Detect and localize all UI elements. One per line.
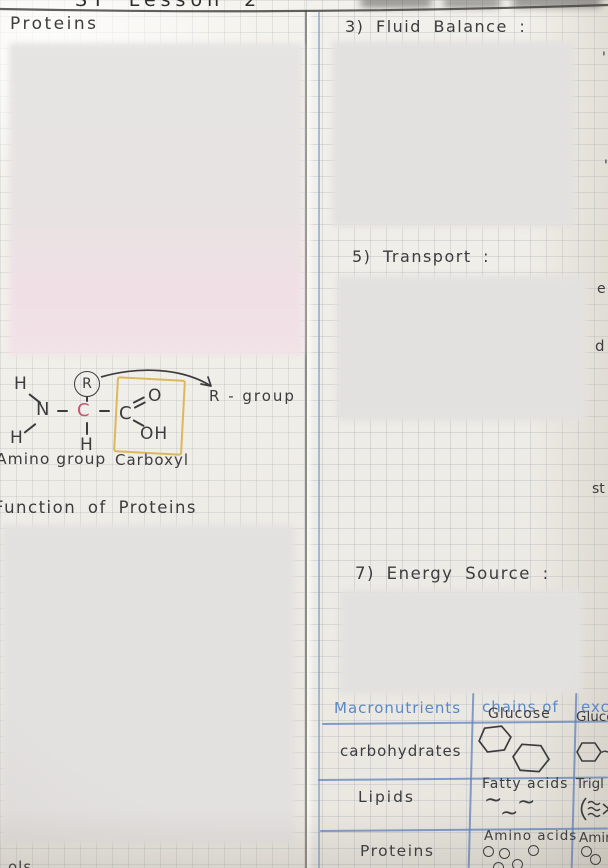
amino-acids-label: Amino acids: [484, 828, 577, 844]
right-edge-mark-1: ': [602, 50, 606, 66]
bottom-left-text-fragment: ols: [8, 858, 32, 868]
section-energy-source: 7) Energy Source :: [355, 564, 550, 583]
redacted-notes-block-1: [9, 43, 303, 356]
excess-amino-label: Amin: [579, 830, 608, 846]
section-fluid-balance: 3) Fluid Balance :: [345, 17, 526, 36]
right-edge-fragment-st: st: [592, 481, 605, 497]
carboxyl-label: Carboxyl: [115, 451, 189, 469]
excess-glucose-label: Glucos: [576, 709, 608, 725]
amino-acid-circle: [512, 859, 523, 868]
notebook-photo: ST Lesson 2 Proteins H N H C R H C O OH: [0, 0, 608, 868]
left-page-title: Proteins: [10, 14, 98, 34]
bond-c-h: [86, 422, 88, 435]
r-group-arrow: [97, 366, 222, 398]
amino-acid-circle: [483, 846, 494, 857]
redacted-notes-block-2: [2, 525, 295, 843]
function-heading: Function of Proteins: [0, 498, 197, 517]
excess-hexagon-tail: ~: [600, 742, 608, 762]
amino-acid-circle: [499, 848, 510, 859]
amino-acid-circle: [493, 862, 504, 868]
right-edge-fragment-e: e: [597, 281, 606, 297]
atom-h-top-left: H: [14, 374, 27, 394]
right-edge-mark-2: ': [604, 158, 608, 174]
bond-r-c: [86, 396, 88, 402]
fatty-acid-squiggle: ~: [500, 801, 518, 826]
right-edge-fragment-d: d: [595, 337, 605, 355]
atom-n: N: [36, 399, 49, 420]
bond-n-c: [57, 410, 68, 412]
amino-acid-circle: [528, 845, 539, 856]
r-group-label: R - group: [209, 387, 296, 405]
redacted-fluid-balance: [332, 41, 575, 227]
bond-c-c: [99, 410, 110, 412]
redacted-transport: [336, 276, 586, 421]
glucose-hexagon-icon: [478, 726, 512, 752]
table-row-name-carbohydrates: carbohydrates: [340, 742, 462, 760]
section-transport: 5) Transport :: [352, 247, 490, 266]
triglyceride-icon: [575, 796, 608, 822]
glucose-label: Glucose: [488, 706, 551, 722]
excess-amino-circle: [590, 854, 601, 865]
atom-r: R: [82, 376, 92, 392]
fatty-acid-squiggle: ~: [517, 790, 535, 815]
excess-hexagon-icon: [576, 742, 602, 762]
atom-h-bottom-left: H: [10, 428, 23, 448]
table-row-name-proteins: Proteins: [360, 842, 434, 860]
excess-triglyceride-label: Trigl: [576, 776, 604, 792]
amino-group-label: Amino group: [0, 450, 106, 468]
table-header-macronutrients: Macronutrients: [334, 699, 461, 717]
page-spine-highlight: [307, 10, 314, 868]
glucose-hexagon-icon: [512, 744, 550, 772]
redacted-energy-source: [340, 590, 582, 694]
right-page-margin-line: [318, 12, 320, 868]
table-row-name-lipids: Lipids: [358, 788, 415, 806]
atom-c-alpha: C: [77, 400, 90, 421]
